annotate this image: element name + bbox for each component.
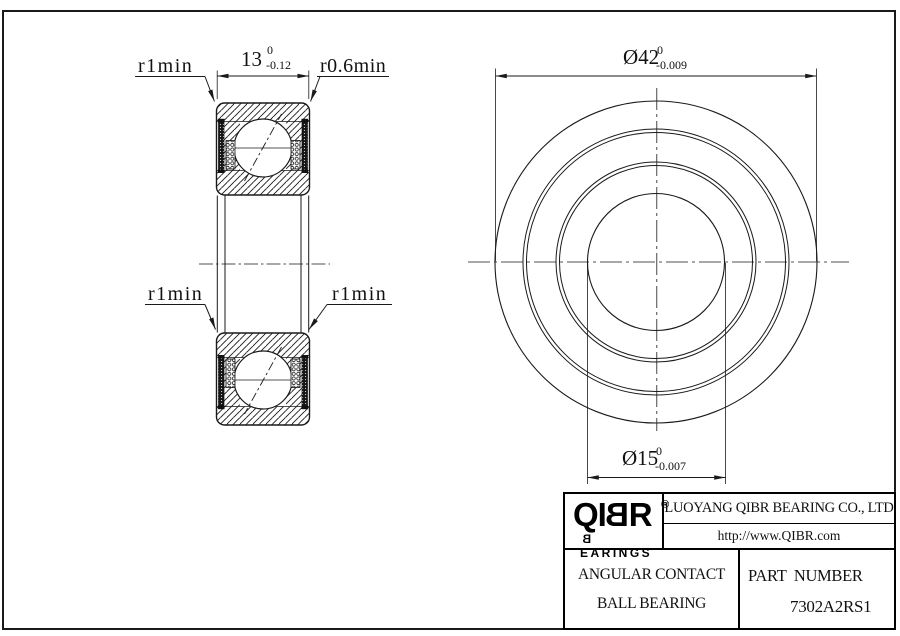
- part-number-label: PART NUMBER: [748, 566, 863, 586]
- width-dim-tol-upper: 0: [267, 43, 273, 57]
- registered-mark: ®: [661, 499, 669, 511]
- width-dim-tol-lower: -0.12: [266, 58, 291, 72]
- outer-diameter-dimension: Ø42 0 -0.009: [496, 43, 817, 261]
- arrowhead-left: [588, 475, 599, 480]
- arrowhead-right: [805, 74, 816, 79]
- logo-prefix: QI: [573, 496, 606, 533]
- bore-dim-value: Ø15: [622, 446, 658, 470]
- r06min-label: r0.6min: [320, 55, 386, 77]
- leader-r1min-top-left: r1min: [135, 55, 215, 102]
- bearing-cross-section-bottom: [217, 333, 310, 425]
- arrowhead-right: [714, 475, 725, 480]
- product-line2: BALL BEARING: [597, 589, 706, 618]
- logo-suffix: R: [629, 496, 652, 533]
- od-dim-tol-upper: 0: [657, 43, 663, 57]
- front-view: Ø42 0 -0.009 Ø15 0 -0.007: [468, 43, 849, 484]
- arrowhead-left: [217, 74, 228, 79]
- logo-cell: QIBR ® BEARINGS: [565, 494, 664, 548]
- r1min-label: r1min: [138, 55, 193, 77]
- leader-r1min-bottom-left: r1min: [145, 283, 216, 330]
- title-block-bottom-row: ANGULAR CONTACT BALL BEARING PART NUMBER…: [565, 550, 894, 628]
- leader-arrowhead: [309, 318, 318, 329]
- brand-mirrored-b: B: [580, 532, 591, 546]
- od-dim-value: Ø42: [623, 45, 659, 69]
- brand-rest: EARINGS: [580, 546, 652, 560]
- title-block-top-row: QIBR ® BEARINGS LUOYANG QIBR BEARING CO.…: [565, 494, 894, 550]
- qibr-logo: QIBR: [573, 498, 652, 531]
- company-cell: LUOYANG QIBR BEARING CO., LTD http://www…: [664, 494, 894, 548]
- leader-r06min-top-right: r0.6min: [311, 55, 390, 102]
- width-dim-value: 13: [241, 47, 262, 71]
- arrowhead-right: [298, 74, 309, 79]
- section-view: 13 0 -0.12 r1min r0.6min r1min: [135, 43, 392, 425]
- logo-mirrored-b: B: [606, 498, 629, 531]
- bore-dim-tol-lower: -0.007: [655, 459, 686, 473]
- bore-dim-tol-upper: 0: [656, 444, 662, 458]
- od-dim-tol-lower: -0.009: [656, 58, 687, 72]
- part-number-cell: PART NUMBER 7302A2RS1: [740, 550, 894, 628]
- bearings-wordmark: BEARINGS: [580, 532, 662, 560]
- company-name: LUOYANG QIBR BEARING CO., LTD: [664, 494, 894, 524]
- leader-arrowhead: [311, 90, 317, 102]
- leader-arrowhead: [208, 90, 214, 102]
- product-description-cell: ANGULAR CONTACT BALL BEARING: [565, 550, 740, 628]
- part-number-value: 7302A2RS1: [790, 597, 871, 617]
- arrowhead-left: [496, 74, 507, 79]
- drawing-sheet: 13 0 -0.12 r1min r0.6min r1min: [0, 0, 900, 636]
- r1min-label: r1min: [332, 283, 387, 305]
- width-dimension: 13 0 -0.12: [217, 43, 309, 99]
- leader-r1min-bottom-right: r1min: [309, 283, 392, 330]
- bearing-cross-section-top: [217, 103, 310, 195]
- r1min-label: r1min: [148, 283, 203, 305]
- company-website: http://www.QIBR.com: [664, 524, 894, 548]
- title-block: QIBR ® BEARINGS LUOYANG QIBR BEARING CO.…: [563, 492, 896, 630]
- product-line1: ANGULAR CONTACT: [578, 560, 725, 589]
- leader-arrowhead: [209, 318, 215, 330]
